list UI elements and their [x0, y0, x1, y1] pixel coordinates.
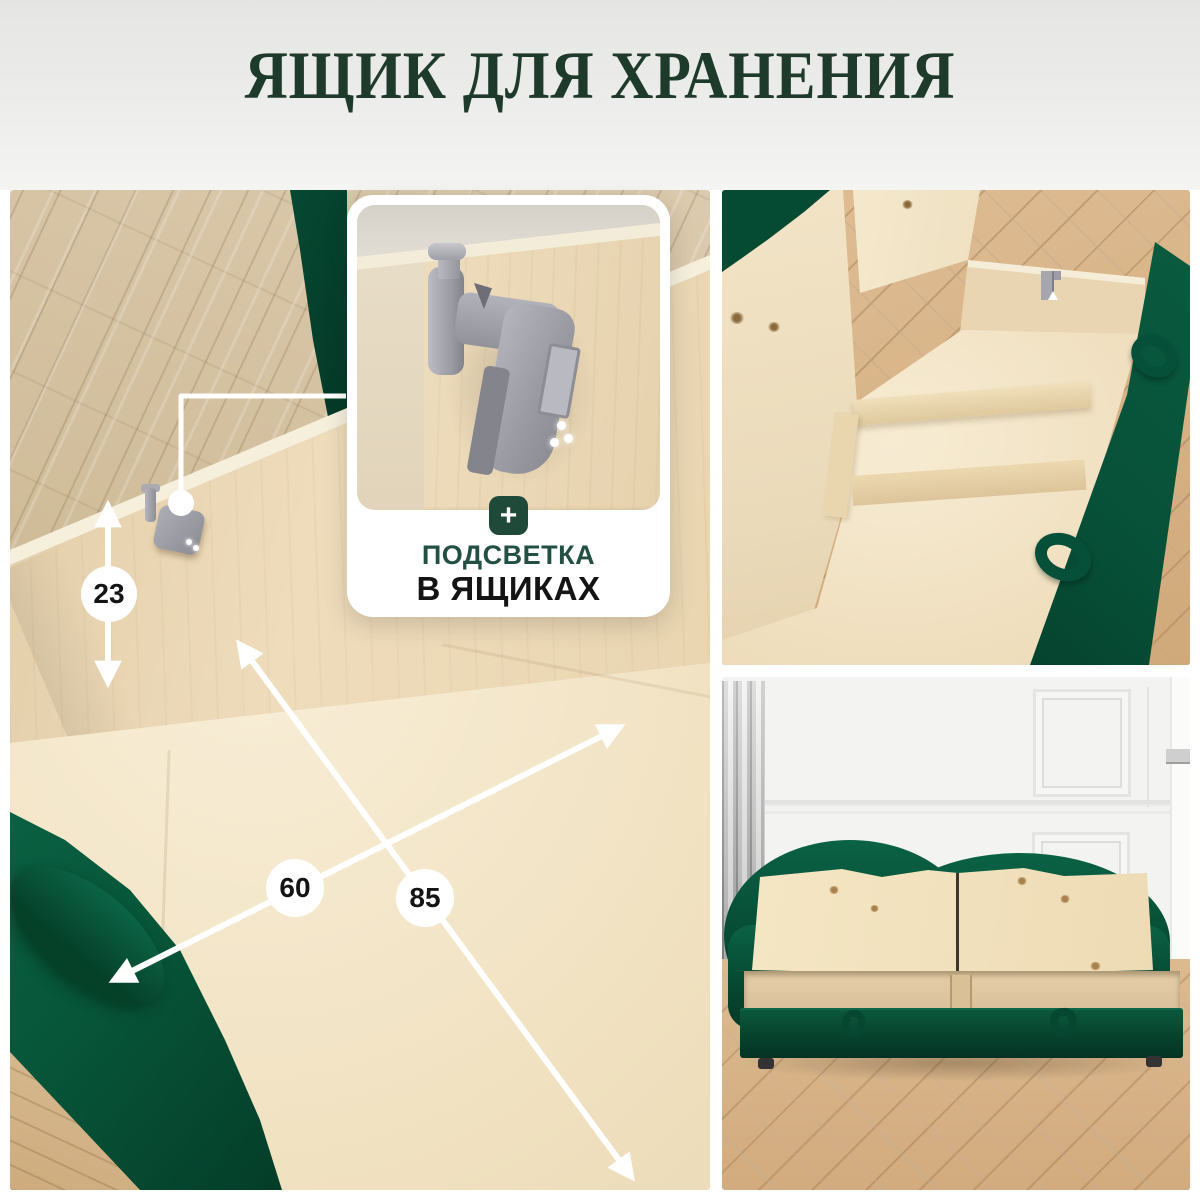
- wood-knot: [768, 322, 780, 332]
- wall-molding-rail: [764, 811, 1170, 814]
- feature-title-line2: В ЯЩИКАХ: [347, 570, 670, 608]
- wall-panel-frame: [1033, 689, 1131, 797]
- feature-card-lighting: + ПОДСВЕТКА В ЯЩИКАХ: [347, 195, 670, 617]
- led-dot: [550, 438, 559, 447]
- wall-molding-rail: [764, 800, 1170, 804]
- caster-wheel: [1146, 1056, 1162, 1067]
- highlight-arrow-icon: [1048, 291, 1058, 300]
- wood-knot: [829, 886, 839, 894]
- dimension-badge-length: 85: [396, 869, 454, 927]
- wood-knot: [902, 200, 913, 209]
- photo-drawer-side-view: [722, 190, 1190, 665]
- photo-sofa-open-storage: [722, 677, 1190, 1190]
- wood-knot: [1060, 895, 1070, 903]
- page-title: ЯЩИК ДЛЯ ХРАНЕНИЯ: [72, 36, 1128, 115]
- hinge-closeup-photo: [357, 205, 660, 510]
- wood-knot: [1017, 877, 1027, 885]
- sofa-base-green: [740, 1008, 1183, 1058]
- led-dot: [557, 421, 566, 430]
- white-cabinet-edge: [1170, 677, 1190, 961]
- hinge-pin-cap: [428, 243, 466, 260]
- wood-knot: [1090, 962, 1101, 970]
- wood-knot: [870, 905, 879, 912]
- header-band: ЯЩИК ДЛЯ ХРАНЕНИЯ: [0, 0, 1200, 190]
- wall-molding-line: [1147, 687, 1149, 807]
- dimension-badge-height: 23: [81, 566, 137, 622]
- storage-divider-post: [950, 975, 972, 1011]
- caster-wheel: [758, 1058, 774, 1069]
- callout-line: [181, 396, 346, 503]
- plus-icon: +: [489, 496, 528, 535]
- callout-dot: [168, 490, 194, 516]
- lid-gap: [956, 873, 959, 975]
- feature-title-line1: ПОДСВЕТКА: [347, 540, 670, 571]
- dimension-line-60: [116, 728, 618, 979]
- dimension-badge-width: 60: [266, 859, 324, 917]
- cabinet-shelf: [1166, 749, 1190, 764]
- wood-knot: [730, 312, 744, 324]
- product-infographic: ЯЩИК ДЛЯ ХРАНЕНИЯ: [0, 0, 1200, 1200]
- led-dot: [564, 434, 573, 443]
